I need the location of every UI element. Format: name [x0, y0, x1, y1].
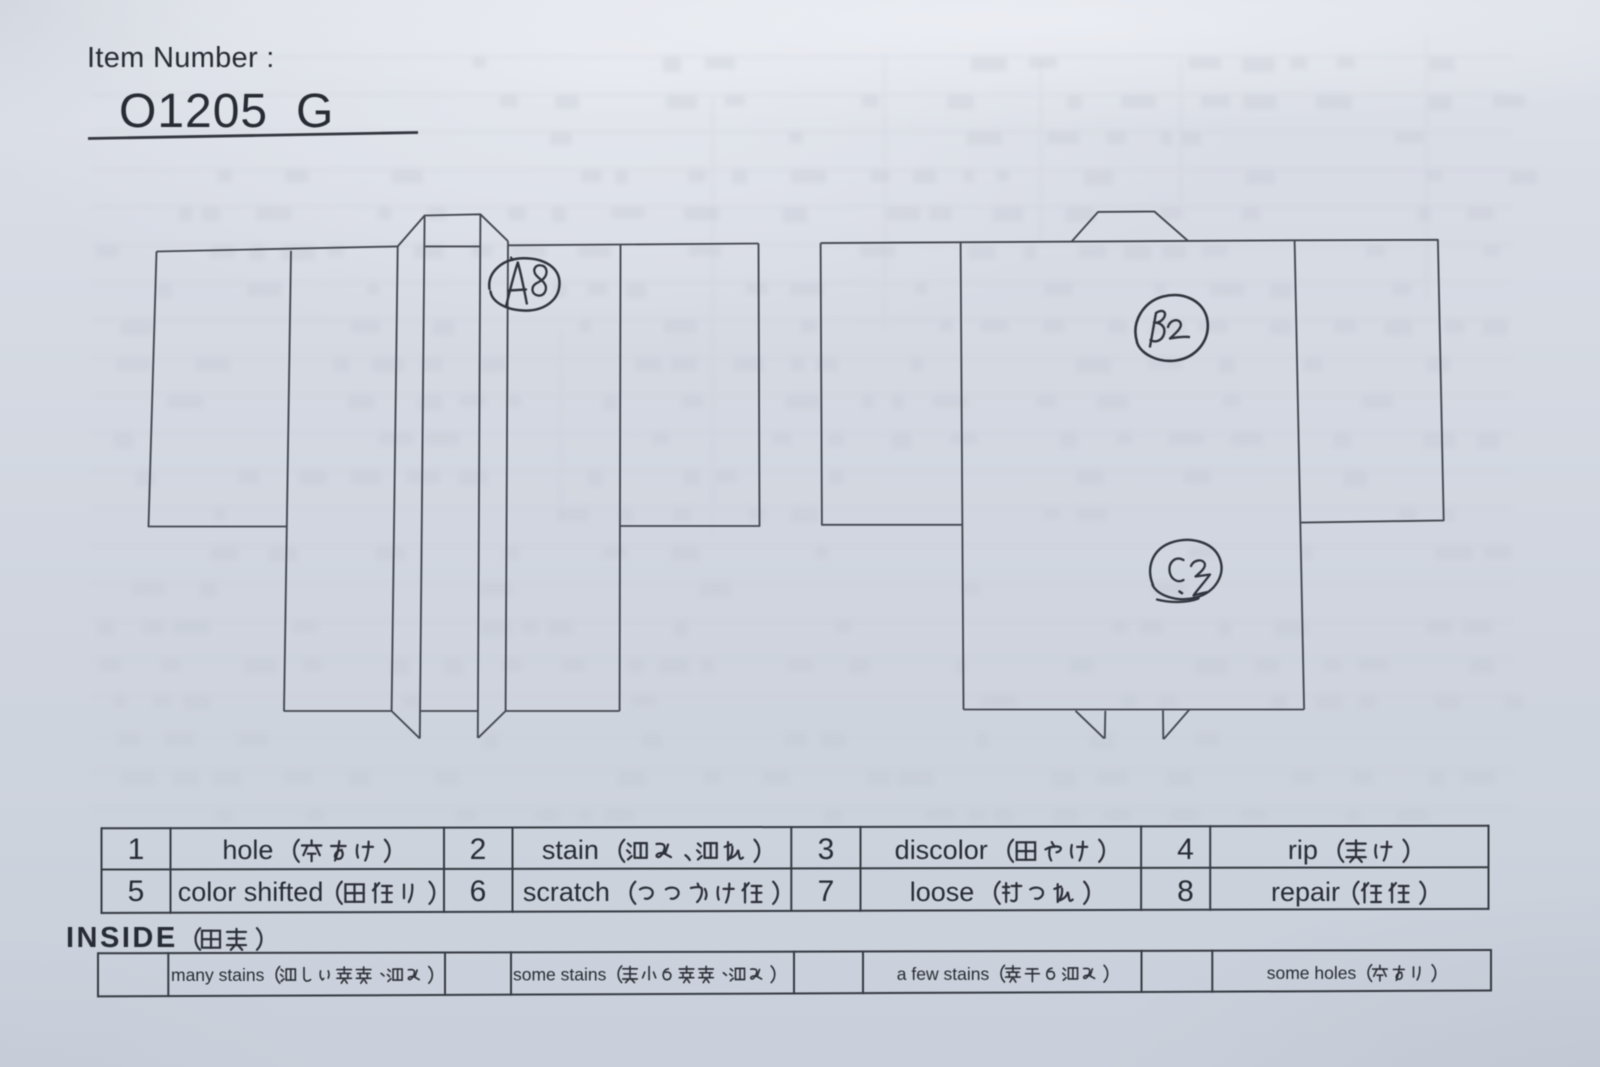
svg-text:7: 7 [818, 875, 835, 908]
svg-text:discolor: discolor [895, 835, 988, 865]
svg-text:G: G [296, 85, 333, 138]
svg-text:INSIDE: INSIDE [66, 922, 178, 954]
svg-text:some holes: some holes [1267, 963, 1357, 983]
svg-text:loose: loose [910, 877, 975, 907]
svg-text:color shifted: color shifted [178, 877, 324, 907]
svg-text:4: 4 [1177, 833, 1194, 866]
svg-text:Item Number :: Item Number : [87, 42, 275, 74]
svg-text:scratch: scratch [523, 877, 610, 907]
svg-text:O1205: O1205 [119, 85, 268, 138]
svg-text:5: 5 [128, 875, 145, 908]
svg-text:6: 6 [470, 875, 487, 908]
svg-text:3: 3 [818, 833, 835, 866]
svg-text:a few stains: a few stains [897, 964, 990, 984]
svg-text:2: 2 [470, 833, 487, 866]
svg-text:many stains: many stains [171, 965, 265, 985]
svg-text:8: 8 [1177, 875, 1194, 908]
svg-text:stain: stain [542, 835, 599, 865]
svg-text:repair: repair [1271, 877, 1340, 907]
svg-text:rip: rip [1288, 835, 1318, 865]
svg-text:some stains: some stains [513, 964, 607, 984]
svg-text:1: 1 [128, 833, 145, 866]
svg-text:hole: hole [222, 835, 273, 865]
